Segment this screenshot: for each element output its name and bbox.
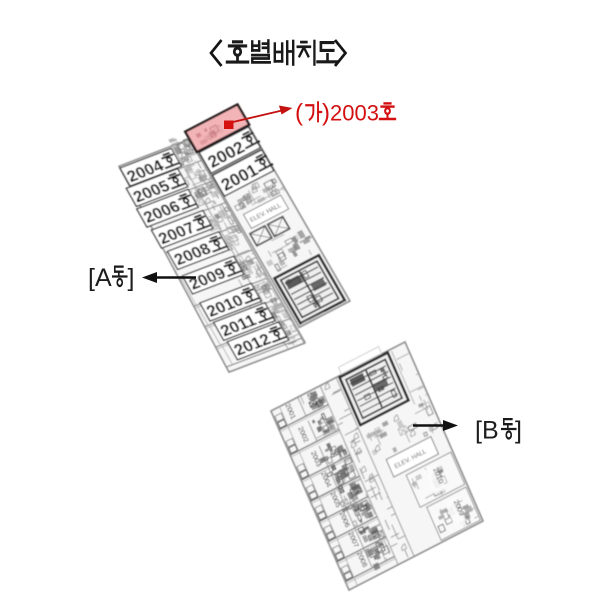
svg-text:[B: [B (475, 417, 499, 445)
svg-text:[A: [A (88, 264, 112, 292)
svg-text:]: ] (128, 264, 135, 292)
svg-text:]: ] (515, 417, 522, 445)
svg-text:): ) (322, 100, 330, 127)
svg-text:2003: 2003 (330, 101, 379, 126)
svg-text:(: ( (295, 100, 303, 127)
